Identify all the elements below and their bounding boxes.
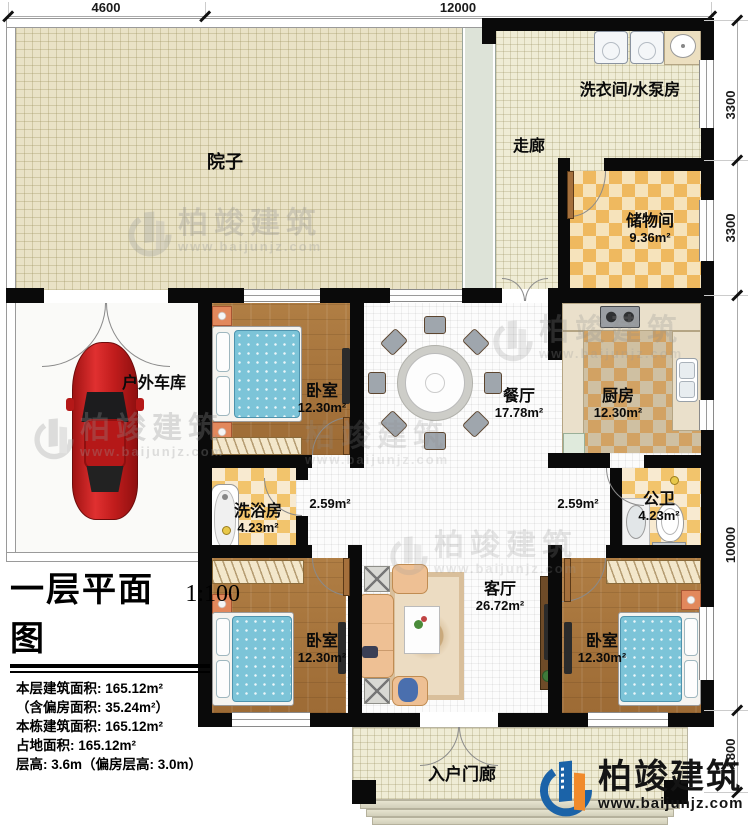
- window: [699, 400, 714, 430]
- end-table: [364, 566, 390, 592]
- wall-segment: [701, 18, 714, 60]
- car-windshield: [80, 392, 130, 422]
- window: [699, 607, 714, 680]
- floor-plan: 柏竣建筑 www.baijunjz.com 柏竣建筑 www.baijunjz.…: [0, 0, 750, 833]
- room-label-living: 客厅 26.72m²: [476, 581, 524, 613]
- dimension-line-top: [8, 16, 714, 17]
- title-block: 一层平面图 1:100 本层建筑面积: 165.12m² （含偏房面积: 35.…: [10, 562, 240, 774]
- bed-mattress: [234, 330, 300, 418]
- wardrobe: [212, 437, 302, 455]
- wall-segment: [6, 288, 44, 303]
- fence-garage-bottom: [6, 552, 206, 562]
- bed-pillow: [684, 618, 698, 656]
- stat-line: 本层建筑面积: 165.12m²: [16, 679, 240, 698]
- dining-chair: [424, 432, 446, 450]
- wall-segment: [168, 288, 206, 303]
- coffee-table: [404, 606, 440, 654]
- room-label-shower: 洗浴房 4.23m²: [234, 503, 282, 535]
- car-mirror: [66, 398, 74, 411]
- hall-area-right: 2.59m²: [557, 497, 598, 511]
- wall-segment: [462, 288, 502, 303]
- wall-segment: [198, 455, 312, 468]
- car-mirror: [136, 398, 144, 411]
- extension-line: [704, 710, 748, 711]
- company-logo-icon: [540, 756, 592, 818]
- door-leaf: [564, 558, 571, 602]
- sofa: [358, 594, 394, 678]
- porch-step: [372, 817, 668, 825]
- door-leaf: [343, 417, 350, 455]
- wall-lamp: [222, 526, 231, 535]
- door-leaf: [343, 558, 350, 596]
- plan-scale: 1:100: [185, 581, 240, 608]
- washing-machine-drum: [638, 42, 656, 60]
- dimension-line-right: [737, 20, 738, 792]
- wall-segment: [296, 516, 308, 558]
- wall-segment: [350, 288, 364, 468]
- stat-line: （含偏房面积: 35.24m²）: [16, 698, 240, 717]
- entrance-opening: [420, 712, 498, 727]
- bathtub-drain: [222, 494, 228, 500]
- dining-chair: [424, 316, 446, 334]
- cushion: [362, 646, 378, 658]
- room-label-yard: 院子: [207, 153, 243, 173]
- stat-line: 占地面积: 165.12m²: [16, 736, 240, 755]
- wall-segment: [644, 455, 714, 468]
- bed-mattress: [620, 616, 682, 702]
- extension-line: [704, 160, 748, 161]
- fence-top: [6, 18, 486, 28]
- porch-pier: [352, 780, 376, 804]
- bed-pillow: [684, 660, 698, 698]
- window: [244, 289, 320, 302]
- dining-table-lazy-susan: [425, 373, 445, 393]
- title-underline: [10, 671, 210, 673]
- armchair: [392, 564, 428, 594]
- room-label-corridor: 走廊: [513, 138, 545, 156]
- dimension-label: 4600: [92, 0, 121, 15]
- wall-segment: [604, 158, 714, 171]
- kitchen-sink-basin: [679, 381, 695, 398]
- company-logo: 柏竣建筑 www.baijunjz.com: [540, 756, 743, 818]
- end-table: [364, 678, 390, 704]
- room-label-porch: 入户门廊: [428, 766, 496, 785]
- dimension-label: 10000: [700, 515, 750, 575]
- person-figure: [398, 678, 418, 702]
- wall-segment: [548, 453, 610, 468]
- dimension-label: 3300: [700, 198, 750, 258]
- tv: [564, 622, 572, 674]
- car-roof: [84, 419, 126, 469]
- laundry-sink-drain: [681, 44, 685, 48]
- stat-line: 层高: 3.6m（偏房层高: 3.0m）: [16, 755, 240, 774]
- wall-segment: [482, 18, 496, 44]
- bed-mattress: [232, 616, 292, 702]
- corridor-glass-wall: [462, 28, 496, 290]
- wall-segment: [348, 545, 362, 727]
- extension-line: [704, 20, 748, 21]
- room-label-dining: 餐厅 17.78m²: [495, 388, 543, 420]
- room-label-laundry: 洗衣间/水泵房: [580, 82, 680, 100]
- wall-segment: [606, 545, 714, 558]
- bed-pillow: [216, 376, 230, 416]
- room-label-storage: 储物间 9.36m²: [626, 213, 674, 245]
- company-name: 柏竣建筑: [598, 760, 743, 794]
- dining-chair: [368, 372, 386, 394]
- room-label-bedroom-top: 卧室 12.30m²: [298, 383, 346, 415]
- wall-segment: [198, 545, 312, 558]
- stat-line: 本栋建筑面积: 165.12m²: [16, 717, 240, 736]
- door-leaf: [567, 171, 574, 219]
- window: [232, 712, 310, 727]
- nightstand: [212, 306, 232, 326]
- room-label-bedroom-left: 卧室 12.30m²: [298, 633, 346, 665]
- extension-line: [704, 295, 748, 296]
- wall-lamp: [670, 476, 679, 485]
- room-label-garage: 户外车库: [122, 375, 186, 393]
- title-underline: [10, 664, 210, 668]
- kitchen-sink-basin: [679, 362, 695, 379]
- window: [588, 712, 668, 727]
- wall-segment: [498, 713, 588, 727]
- wardrobe: [606, 560, 701, 584]
- window: [390, 289, 462, 302]
- washing-machine-drum: [602, 42, 620, 60]
- wall-segment: [484, 18, 714, 31]
- table-flowers: [421, 616, 427, 622]
- wall-segment: [548, 288, 714, 303]
- wall-segment: [548, 545, 562, 727]
- dimension-label: 12000: [440, 0, 476, 15]
- dimension-label: 3300: [700, 75, 750, 135]
- company-website: www.baijunjz.com: [598, 794, 743, 814]
- room-label-bedroom-right: 卧室 12.30m²: [578, 633, 626, 665]
- hall-area-left: 2.59m²: [309, 497, 350, 511]
- bed-pillow: [216, 332, 230, 372]
- stove: [600, 306, 640, 328]
- wall-segment: [310, 713, 420, 727]
- room-label-kitchen: 厨房 12.30m²: [594, 388, 642, 420]
- room-label-wc: 公卫 4.23m²: [638, 491, 679, 523]
- plan-title: 一层平面图: [10, 562, 175, 660]
- nightstand: [681, 590, 701, 610]
- wall-segment: [701, 261, 714, 400]
